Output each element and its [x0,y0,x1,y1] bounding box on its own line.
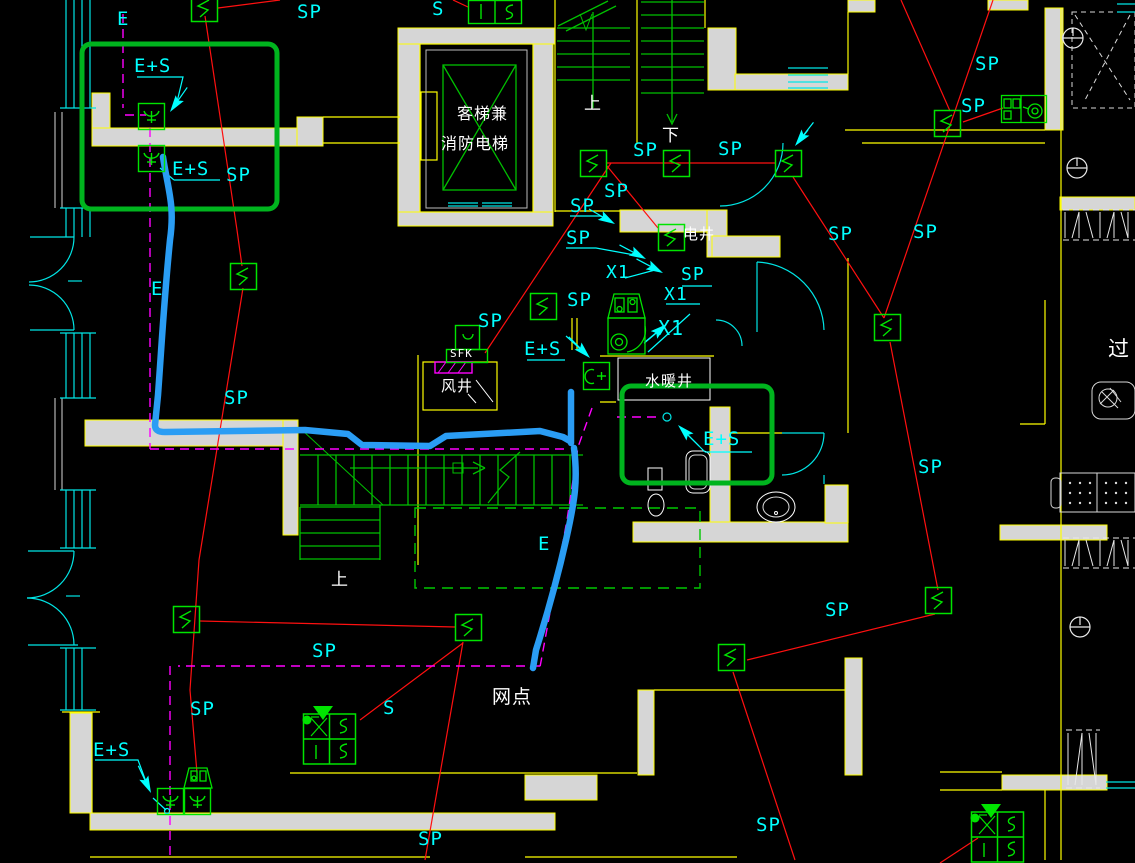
leader-arrow-icon [617,241,648,264]
leader-arrow-icon [134,764,156,795]
leader-arrow-icon [166,85,191,115]
windows-doors [27,0,1135,788]
wc-appliance-small-icon[interactable] [184,768,212,788]
leader-arrow-icon [674,421,702,449]
ceiling-light-2-icon[interactable] [1067,158,1087,178]
highlight-box-1 [82,44,277,209]
speaker-box-3-icon[interactable] [581,151,607,177]
speaker-box-2-icon[interactable] [231,264,257,290]
speaker-box-7-icon[interactable] [531,294,557,320]
ceiling-light-3-icon[interactable] [1070,617,1090,637]
es-detector-1-icon[interactable] [139,104,165,130]
wc-appliance-icon[interactable] [608,294,645,354]
stairs-and-elevator [300,0,704,560]
speaker-box-12-icon[interactable] [719,645,745,671]
speaker-box-9-icon[interactable] [875,315,901,341]
sfk-fan-unit-icon[interactable] [447,326,488,363]
es-detector-5-icon[interactable] [584,363,610,390]
detector-unit-icon[interactable] [1002,96,1047,123]
es-detector-4-icon[interactable] [185,789,211,815]
highlight-box-2 [622,386,772,483]
circuit-node [663,413,671,421]
cad-canvas[interactable]: EE+SE+SSPSPSSPSPSPSPSPX1SPSPX1X1SPE+SE+S… [0,0,1135,863]
highlight-boxes [82,44,772,483]
leader-arrow-icon [791,119,817,149]
speaker-box-13-icon[interactable] [926,588,952,614]
drawing-layer [0,0,1135,863]
ceiling-light-1-icon[interactable] [1063,28,1083,48]
radiator-icon [1063,210,1135,788]
leader-arrow-icon [565,333,593,361]
speaker-box-1-icon[interactable] [192,0,218,22]
hydrant-panel-2-icon[interactable] [971,804,1024,862]
hydrant-panel-1-icon[interactable] [303,706,356,764]
freehand-blue-stroke [155,157,576,668]
walls [70,0,1135,830]
alarm-bell-box-icon[interactable] [469,1,522,24]
speaker-box-11-icon[interactable] [456,615,482,641]
